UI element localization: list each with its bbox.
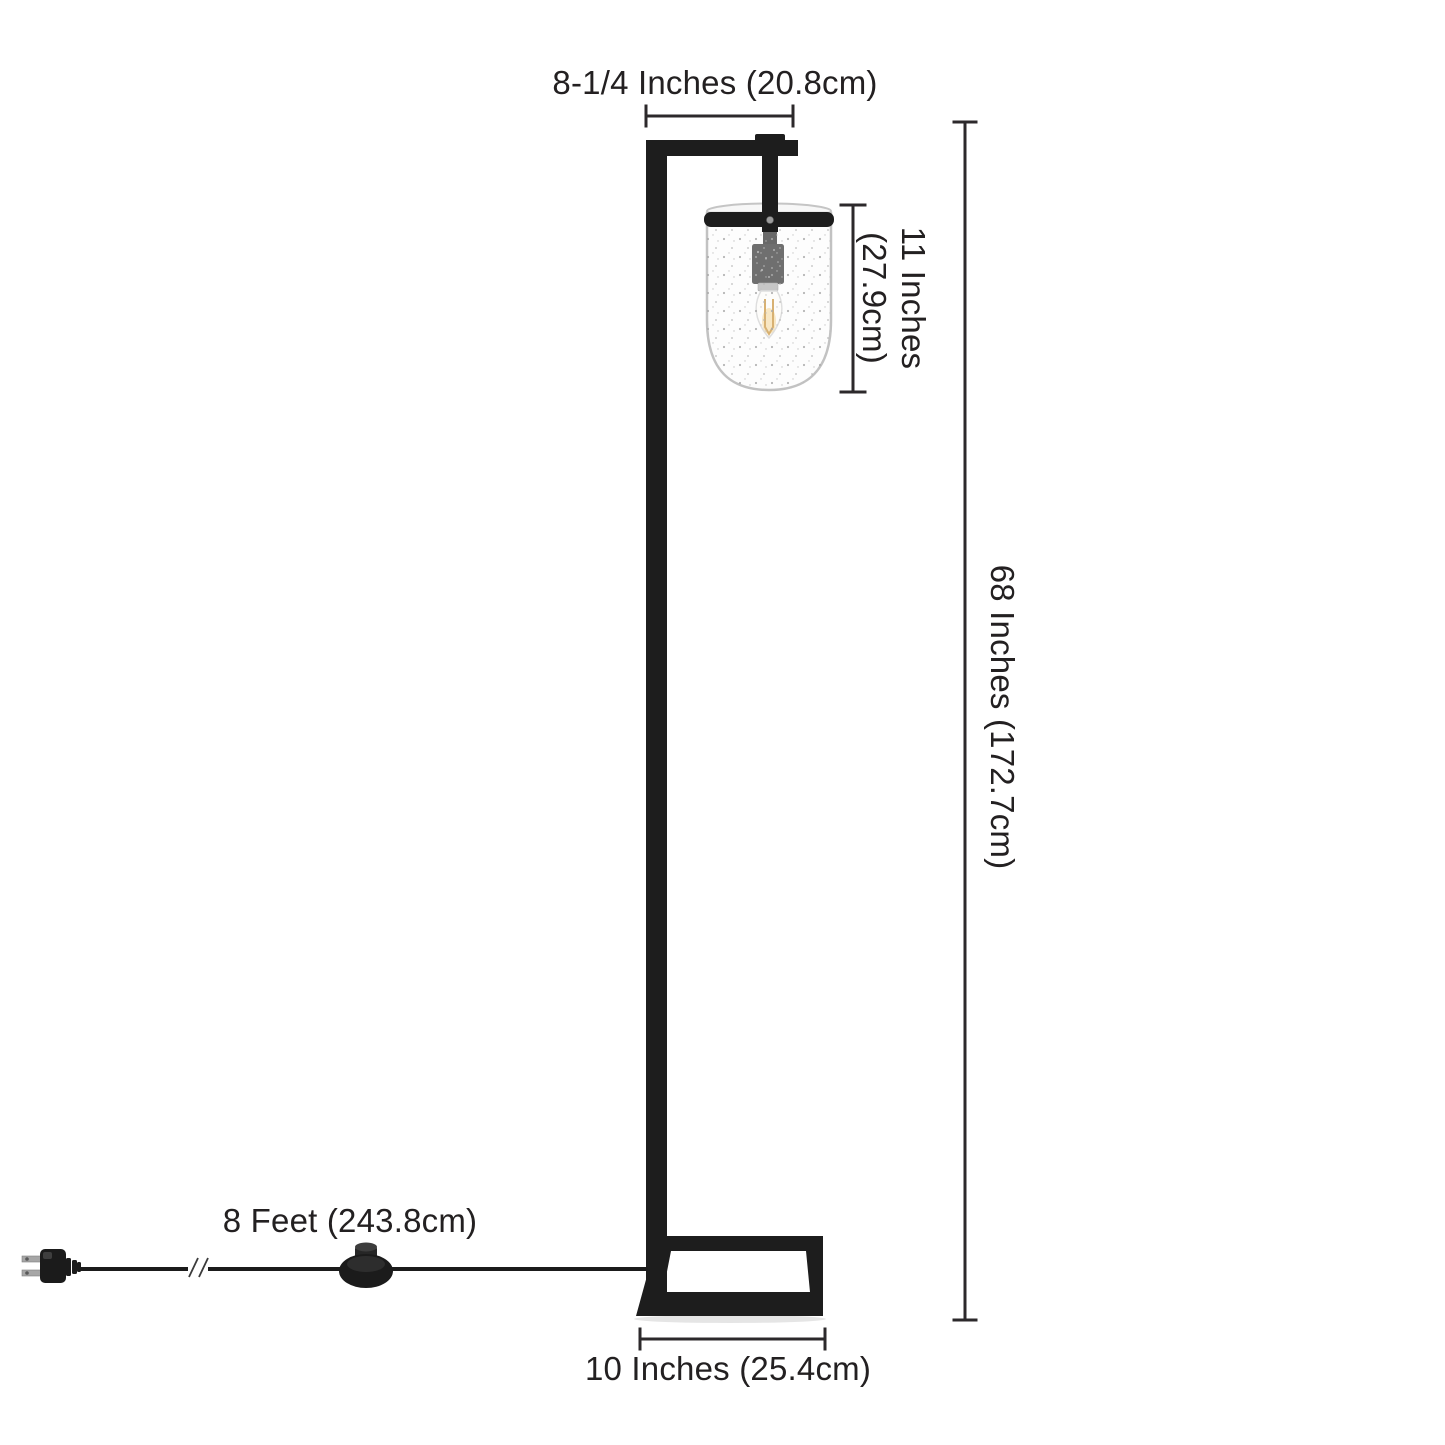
cord-length-label: 8 Feet (243.8cm): [150, 1201, 550, 1240]
dim-line-base-width: [640, 1329, 825, 1349]
base-width-label: 10 Inches (25.4cm): [528, 1349, 928, 1388]
power-cord-group: [22, 1243, 648, 1289]
base-shadow: [634, 1315, 826, 1323]
band-screw: [767, 217, 774, 224]
shade-height-label-line1: 11 Inches: [894, 208, 933, 388]
product-diagram: 8-1/4 Inches (20.8cm) 11 Inches (27.9cm)…: [0, 0, 1445, 1445]
lamp-pole: [646, 140, 667, 1296]
dim-line-lamp-height: [954, 122, 976, 1320]
lamp-arm: [648, 140, 798, 156]
shade-width-label: 8-1/4 Inches (20.8cm): [465, 63, 965, 102]
cord-break-marks: [189, 1258, 208, 1277]
glass-shade-seeds: [707, 213, 831, 390]
foot-switch: [339, 1243, 393, 1289]
lamp-height-label: 68 Inches (172.7cm): [982, 547, 1022, 887]
shade-height-label: 11 Inches (27.9cm): [853, 208, 933, 388]
dim-line-shade-width: [646, 106, 793, 126]
power-plug: [22, 1249, 81, 1283]
shade-height-label-line2: (27.9cm): [855, 208, 894, 388]
